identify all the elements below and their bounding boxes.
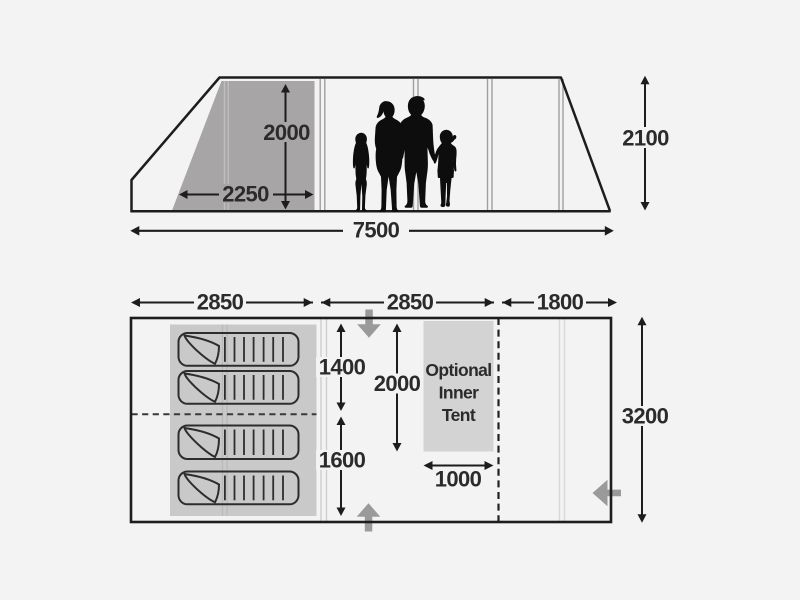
svg-text:1000: 1000 bbox=[435, 466, 482, 491]
svg-text:Tent: Tent bbox=[442, 405, 476, 425]
svg-text:2100: 2100 bbox=[622, 125, 669, 150]
svg-text:2850: 2850 bbox=[387, 290, 434, 315]
svg-text:2000: 2000 bbox=[374, 371, 421, 396]
svg-text:1800: 1800 bbox=[537, 290, 584, 315]
svg-text:1600: 1600 bbox=[319, 448, 366, 473]
svg-text:1400: 1400 bbox=[319, 354, 366, 379]
svg-text:2850: 2850 bbox=[197, 290, 244, 315]
svg-text:7500: 7500 bbox=[353, 218, 400, 243]
svg-text:2000: 2000 bbox=[263, 120, 310, 145]
svg-text:2250: 2250 bbox=[222, 181, 269, 206]
svg-text:Optional: Optional bbox=[425, 360, 491, 380]
svg-text:3200: 3200 bbox=[622, 404, 669, 429]
svg-text:Inner: Inner bbox=[439, 382, 480, 402]
